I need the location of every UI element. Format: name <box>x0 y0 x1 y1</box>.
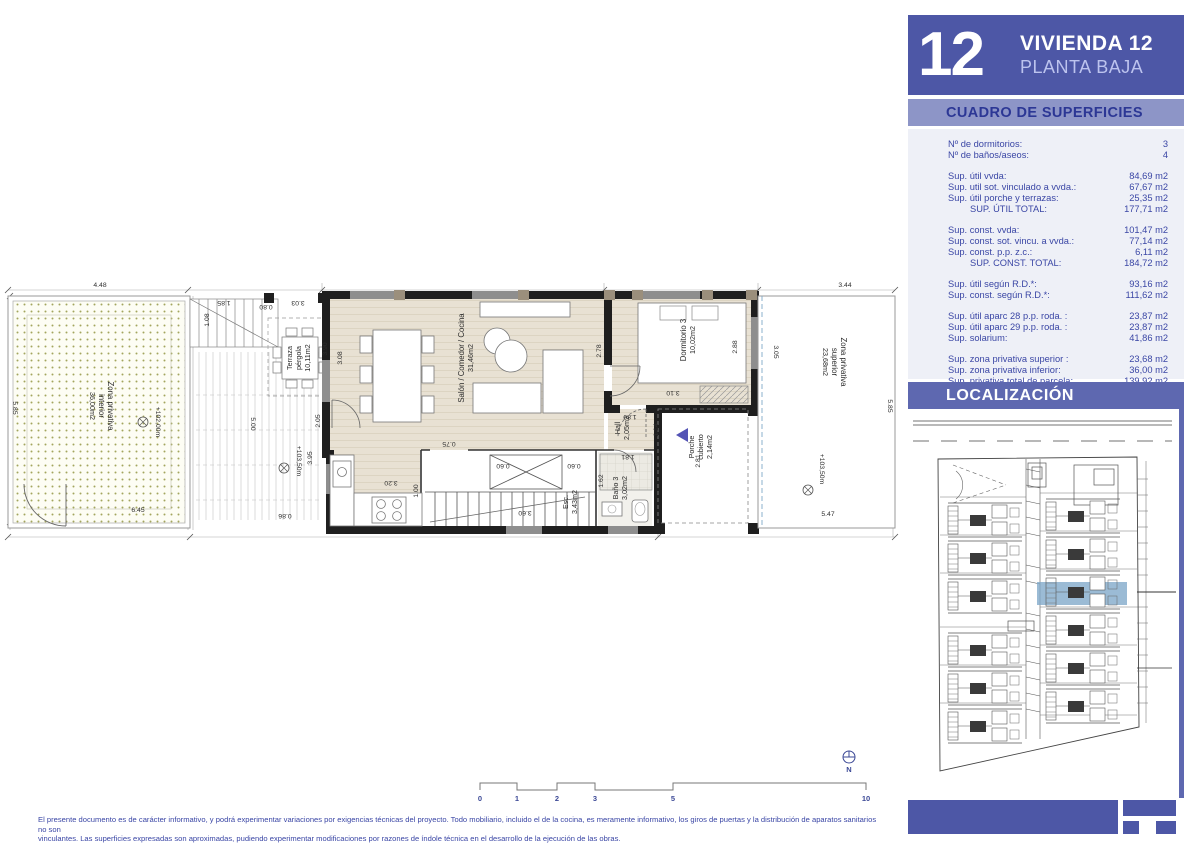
svg-text:10: 10 <box>862 794 870 803</box>
wardrobe <box>700 386 748 403</box>
svg-text:Terraza: Terraza <box>285 346 294 370</box>
dimension-label: 1.80 <box>623 413 636 420</box>
site-unit <box>1046 689 1120 723</box>
surface-label: Sup. útil aparc 29 p.p. roda. : <box>948 322 1110 333</box>
surface-value: 67,67 m2 <box>1110 182 1168 193</box>
dimension-label: 5.85 <box>11 401 18 414</box>
sheet-header: 12 VIVIENDA 12 PLANTA BAJA <box>908 15 1184 95</box>
dimension-label: 2.88 <box>732 340 739 353</box>
site-unit <box>1046 537 1120 571</box>
surface-label: Sup. útil porche y terrazas: <box>948 193 1110 204</box>
stove <box>372 497 406 523</box>
surface-label: Sup. const. según R.D.*: <box>948 290 1110 301</box>
svg-text:pérgola: pérgola <box>294 346 303 370</box>
left-units <box>948 503 1034 743</box>
surface-label: Sup. const. sot. vincu. a vvda.: <box>948 236 1110 247</box>
surface-label: Nº de dormitorios: <box>948 139 1110 150</box>
surface-value: 23,87 m2 <box>1110 322 1168 333</box>
sheet-title: VIVIENDA 12 <box>1020 32 1153 56</box>
surface-table: Nº de dormitorios:3Nº de baños/aseos:4Su… <box>908 129 1184 379</box>
surface-row: Sup. util sot. vinculado a vvda.:67,67 m… <box>908 182 1184 193</box>
surface-value: 4 <box>1110 150 1168 161</box>
logo <box>1123 800 1176 816</box>
svg-text:3,43m2: 3,43m2 <box>570 490 579 514</box>
toilet <box>632 500 648 522</box>
surfaces-band-title: CUADRO DE SUPERFICIES <box>908 105 1143 121</box>
localizacion-band-title: LOCALIZACIÓN <box>908 387 1074 405</box>
surface-row: Sup. const. sot. vincu. a vvda.:77,14 m2 <box>908 236 1184 247</box>
svg-text:+102,00m: +102,00m <box>154 407 161 438</box>
room-label-bano: Baño 3 3,02m2 <box>611 476 629 500</box>
localizacion-band: LOCALIZACIÓN <box>908 382 1184 409</box>
svg-text:31,46m2: 31,46m2 <box>466 344 475 372</box>
dimension-label: 5.85 <box>886 399 893 412</box>
surface-label: SUP. CONST. TOTAL: <box>970 258 1110 269</box>
dimension-label: 3.90 <box>322 342 329 355</box>
sidebar: 12 VIVIENDA 12 PLANTA BAJA CUADRO DE SUP… <box>908 0 1184 854</box>
site-unit <box>1046 499 1120 533</box>
surface-label: Sup. const. vvda: <box>948 225 1110 236</box>
surface-value: 84,69 m2 <box>1110 171 1168 182</box>
surface-row: Sup. zona privativa superior :23,68 m2 <box>908 354 1184 365</box>
surface-value: 25,35 m2 <box>1110 193 1168 204</box>
site-unit <box>948 541 1022 575</box>
surface-row: Sup. útil según R.D.*:93,16 m2 <box>908 279 1184 290</box>
surface-label: Sup. útil según R.D.*: <box>948 279 1110 290</box>
surface-value: 3 <box>1110 139 1168 150</box>
svg-text:0: 0 <box>478 794 482 803</box>
site-map-svg <box>908 409 1184 798</box>
surface-value: 41,86 m2 <box>1110 333 1168 344</box>
surface-row: Nº de dormitorios:3 <box>908 139 1184 150</box>
surface-row: Sup. útil aparc 29 p.p. roda. :23,87 m2 <box>908 322 1184 333</box>
scale-bar: 0 1 2 3 5 10 <box>478 783 870 803</box>
dimension-label: 0.75 <box>442 440 455 447</box>
dimension-label: 6.45 <box>131 507 144 514</box>
dimension-label: 1.00 <box>413 484 420 497</box>
streets <box>913 421 1172 441</box>
dining-table <box>373 330 421 422</box>
surface-row: Sup. const. según R.D.*:111,62 m2 <box>908 290 1184 301</box>
svg-text:+103,50m: +103,50m <box>295 446 302 477</box>
surface-label: SUP. ÚTIL TOTAL: <box>970 204 1110 215</box>
washbasin <box>602 502 622 516</box>
site-unit <box>948 633 1022 667</box>
map-right-border <box>1179 409 1184 798</box>
surface-label: Sup. util sot. vinculado a vvda.: <box>948 182 1110 193</box>
surface-value: 93,16 m2 <box>1110 279 1168 290</box>
svg-text:36,00m2: 36,00m2 <box>88 392 97 420</box>
svg-text:Hall: Hall <box>613 421 622 434</box>
dimension-label: 3.05 <box>772 345 779 358</box>
svg-text:+103,50m: +103,50m <box>818 454 825 485</box>
surface-label: Sup. const. p.p. z.c.: <box>948 247 1110 258</box>
surface-value: 177,71 m2 <box>1110 204 1168 215</box>
dimension-label: 4.48 <box>93 282 106 289</box>
svg-text:Salón / Comedor / Cocina: Salón / Comedor / Cocina <box>457 313 466 403</box>
surface-label: Sup. útil aparc 28 p.p. roda. : <box>948 311 1110 322</box>
surface-row: Sup. útil vvda:84,69 m2 <box>908 171 1184 182</box>
svg-text:2,14m2: 2,14m2 <box>705 435 714 459</box>
dimension-label: 3.08 <box>337 351 344 364</box>
svg-text:5: 5 <box>671 794 675 803</box>
footer-bar <box>908 800 1118 834</box>
dimension-label: 3.03 <box>291 299 304 306</box>
svg-text:superior: superior <box>830 348 839 377</box>
surface-value: 111,62 m2 <box>1110 290 1168 301</box>
dimension-label: 3.20 <box>384 479 397 486</box>
svg-text:Zona privativa: Zona privativa <box>839 338 848 388</box>
dimension-label: 3.60 <box>518 509 531 516</box>
dimension-label: 1.62 <box>598 474 605 487</box>
room-label-terraza: Terraza pérgola 10,11m2 <box>285 344 312 371</box>
svg-text:3: 3 <box>593 794 597 803</box>
dimension-label: 0.60 <box>496 462 509 469</box>
dimension-label: 0.60 <box>567 462 580 469</box>
svg-text:2: 2 <box>555 794 559 803</box>
svg-text:Esc.: Esc. <box>561 495 570 509</box>
right-units <box>1046 499 1120 723</box>
disclaimer-line2: vinculantes. Las superficies expresadas … <box>38 834 886 844</box>
surface-row: Sup. útil porche y terrazas:25,35 m2 <box>908 193 1184 204</box>
north-indicator: N <box>843 751 855 774</box>
dimension-label: 0.80 <box>259 303 272 310</box>
surface-row: SUP. ÚTIL TOTAL:177,71 m2 <box>908 204 1184 215</box>
unit-number: 12 <box>908 15 1014 95</box>
garage-block <box>1008 621 1034 631</box>
north-label: N <box>846 765 851 774</box>
surface-value: 184,72 m2 <box>1110 258 1168 269</box>
site-map <box>908 409 1184 798</box>
room-label-esc: Esc. 3,43m2 <box>561 490 579 514</box>
svg-text:Baño 3: Baño 3 <box>611 477 620 500</box>
surface-label: Sup. útil vvda: <box>948 171 1110 182</box>
dimension-label: 1.14 <box>653 423 660 436</box>
surface-row: Sup. útil aparc 28 p.p. roda. :23,87 m2 <box>908 311 1184 322</box>
svg-text:3,02m2: 3,02m2 <box>620 476 629 500</box>
page: { "header": {"number": "12", "title": "V… <box>0 0 1200 854</box>
dimension-label: 3.10 <box>666 389 679 396</box>
surface-value: 23,87 m2 <box>1110 311 1168 322</box>
dimension-label: 2.05 <box>315 414 322 427</box>
sofa <box>473 383 541 413</box>
site-unit <box>1046 651 1120 685</box>
dimension-label: 3.44 <box>838 282 851 289</box>
sheet-subtitle: PLANTA BAJA <box>1020 57 1153 78</box>
dimension-label: 2.78 <box>596 344 603 357</box>
svg-text:10,11m2: 10,11m2 <box>303 344 312 371</box>
surface-value: 101,47 m2 <box>1110 225 1168 236</box>
disclaimer-line1: El presente documento es de carácter inf… <box>38 815 886 834</box>
dimension-label: 2.81 <box>695 454 702 467</box>
site-unit <box>948 671 1022 705</box>
svg-text:interior: interior <box>97 394 106 418</box>
surface-label: Sup. solarium: <box>948 333 1110 344</box>
logo <box>1156 821 1176 834</box>
dimension-label: 5.00 <box>249 417 256 430</box>
svg-text:10,02m2: 10,02m2 <box>688 326 697 354</box>
site-unit <box>948 503 1022 537</box>
logo <box>1123 821 1139 834</box>
dimension-label: 3.95 <box>307 451 314 464</box>
surface-row: Nº de baños/aseos:4 <box>908 150 1184 161</box>
surface-label: Sup. zona privativa superior : <box>948 354 1110 365</box>
surfaces-band: CUADRO DE SUPERFICIES <box>908 99 1184 126</box>
porch <box>658 409 748 523</box>
surface-value: 36,00 m2 <box>1110 365 1168 376</box>
surface-label: Sup. zona privativa inferior: <box>948 365 1110 376</box>
floor-plan: Zona privativa interior 36,00m2 +102,00m… <box>0 0 910 854</box>
surface-row: SUP. CONST. TOTAL:184,72 m2 <box>908 258 1184 269</box>
entrance-funnel <box>953 465 1006 503</box>
site-unit <box>948 709 1022 743</box>
surface-value: 77,14 m2 <box>1110 236 1168 247</box>
right-strip <box>1137 461 1176 723</box>
surface-label: Nº de baños/aseos: <box>948 150 1110 161</box>
dimension-label: 1.08 <box>204 313 211 326</box>
surface-row: Sup. const. vvda:101,47 m2 <box>908 225 1184 236</box>
surface-row: Sup. solarium:41,86 m2 <box>908 333 1184 344</box>
svg-text:1: 1 <box>515 794 519 803</box>
svg-text:Dormitorio 3: Dormitorio 3 <box>679 319 688 361</box>
dimension-label: 1.81 <box>621 453 634 460</box>
surface-value: 6,11 m2 <box>1110 247 1168 258</box>
dimension-label: 0.86 <box>278 512 291 519</box>
disclaimer: El presente documento es de carácter inf… <box>38 815 886 844</box>
dimension-label: 5.47 <box>821 511 834 518</box>
surface-value: 23,68 m2 <box>1110 354 1168 365</box>
svg-text:23,68m2: 23,68m2 <box>821 348 830 376</box>
site-unit <box>1046 613 1120 647</box>
dimension-label: 1.85 <box>217 299 230 306</box>
surface-row: Sup. const. p.p. z.c.:6,11 m2 <box>908 247 1184 258</box>
footer <box>908 798 1184 836</box>
surface-row: Sup. zona privativa inferior:36,00 m2 <box>908 365 1184 376</box>
site-unit <box>948 579 1022 613</box>
upper-zone <box>758 296 895 528</box>
svg-text:Zona privativa: Zona privativa <box>106 382 115 432</box>
